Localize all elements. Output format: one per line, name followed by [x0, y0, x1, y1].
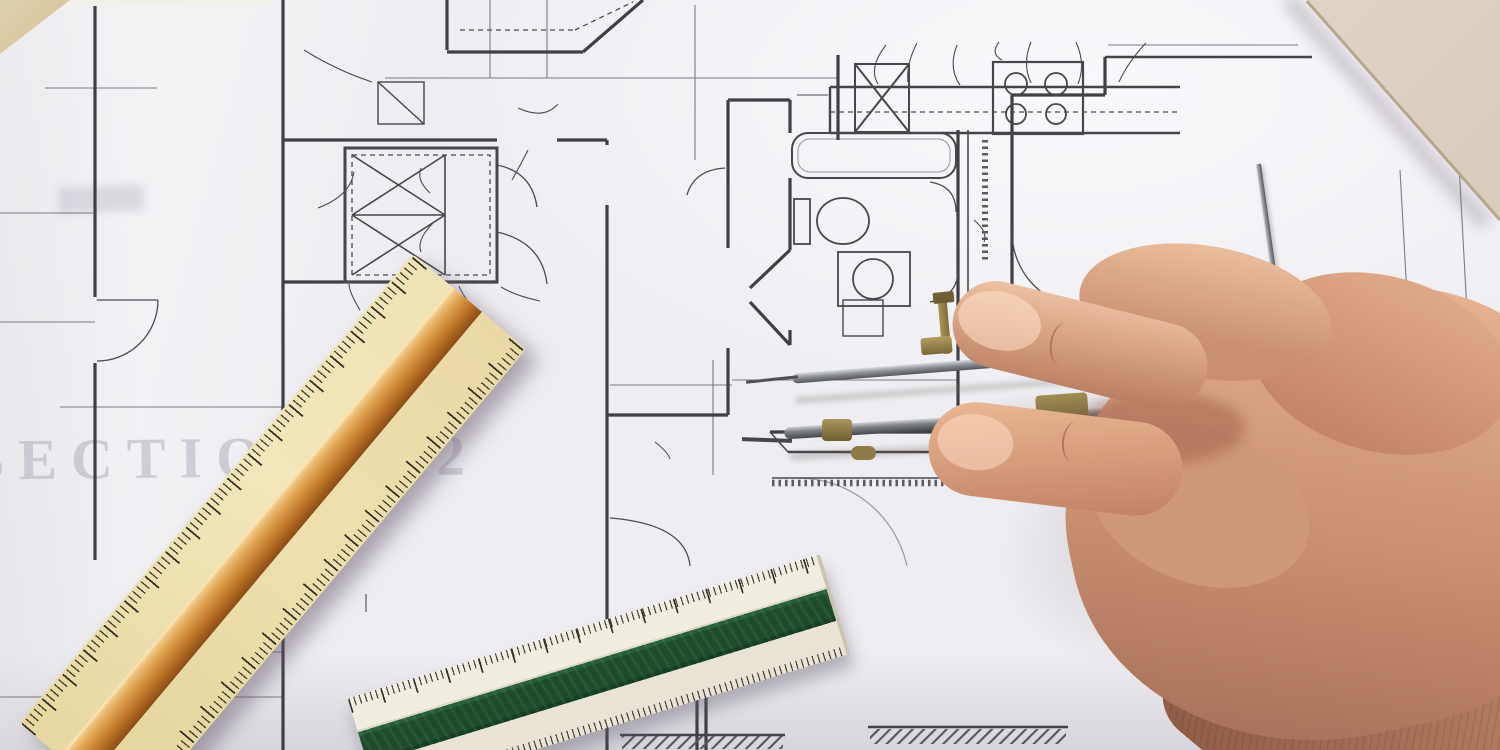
photo-blueprint-scene: SECTION 2-2 — [0, 0, 1500, 750]
compass-bolt-head — [932, 291, 954, 304]
compass-brass-nut — [822, 419, 852, 441]
compass-brass-nut — [920, 336, 952, 356]
compass-brass-nut — [851, 446, 876, 460]
